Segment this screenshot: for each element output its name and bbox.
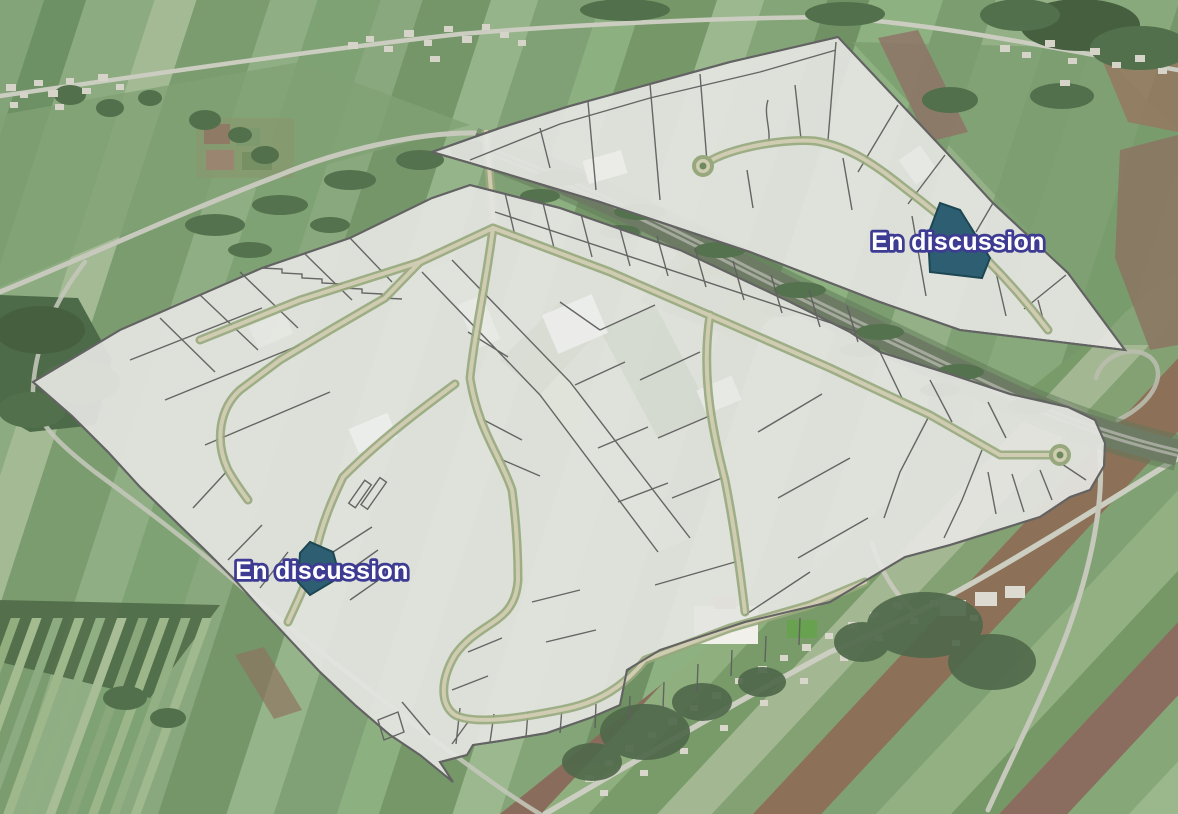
sports-field — [787, 620, 817, 638]
annotation-label-north: En discussion — [871, 228, 1044, 256]
annotation-label-south: En discussion — [235, 557, 408, 585]
map-canvas[interactable]: En discussion En discussion — [0, 0, 1178, 814]
map-viewport[interactable]: En discussion En discussion — [0, 0, 1178, 814]
